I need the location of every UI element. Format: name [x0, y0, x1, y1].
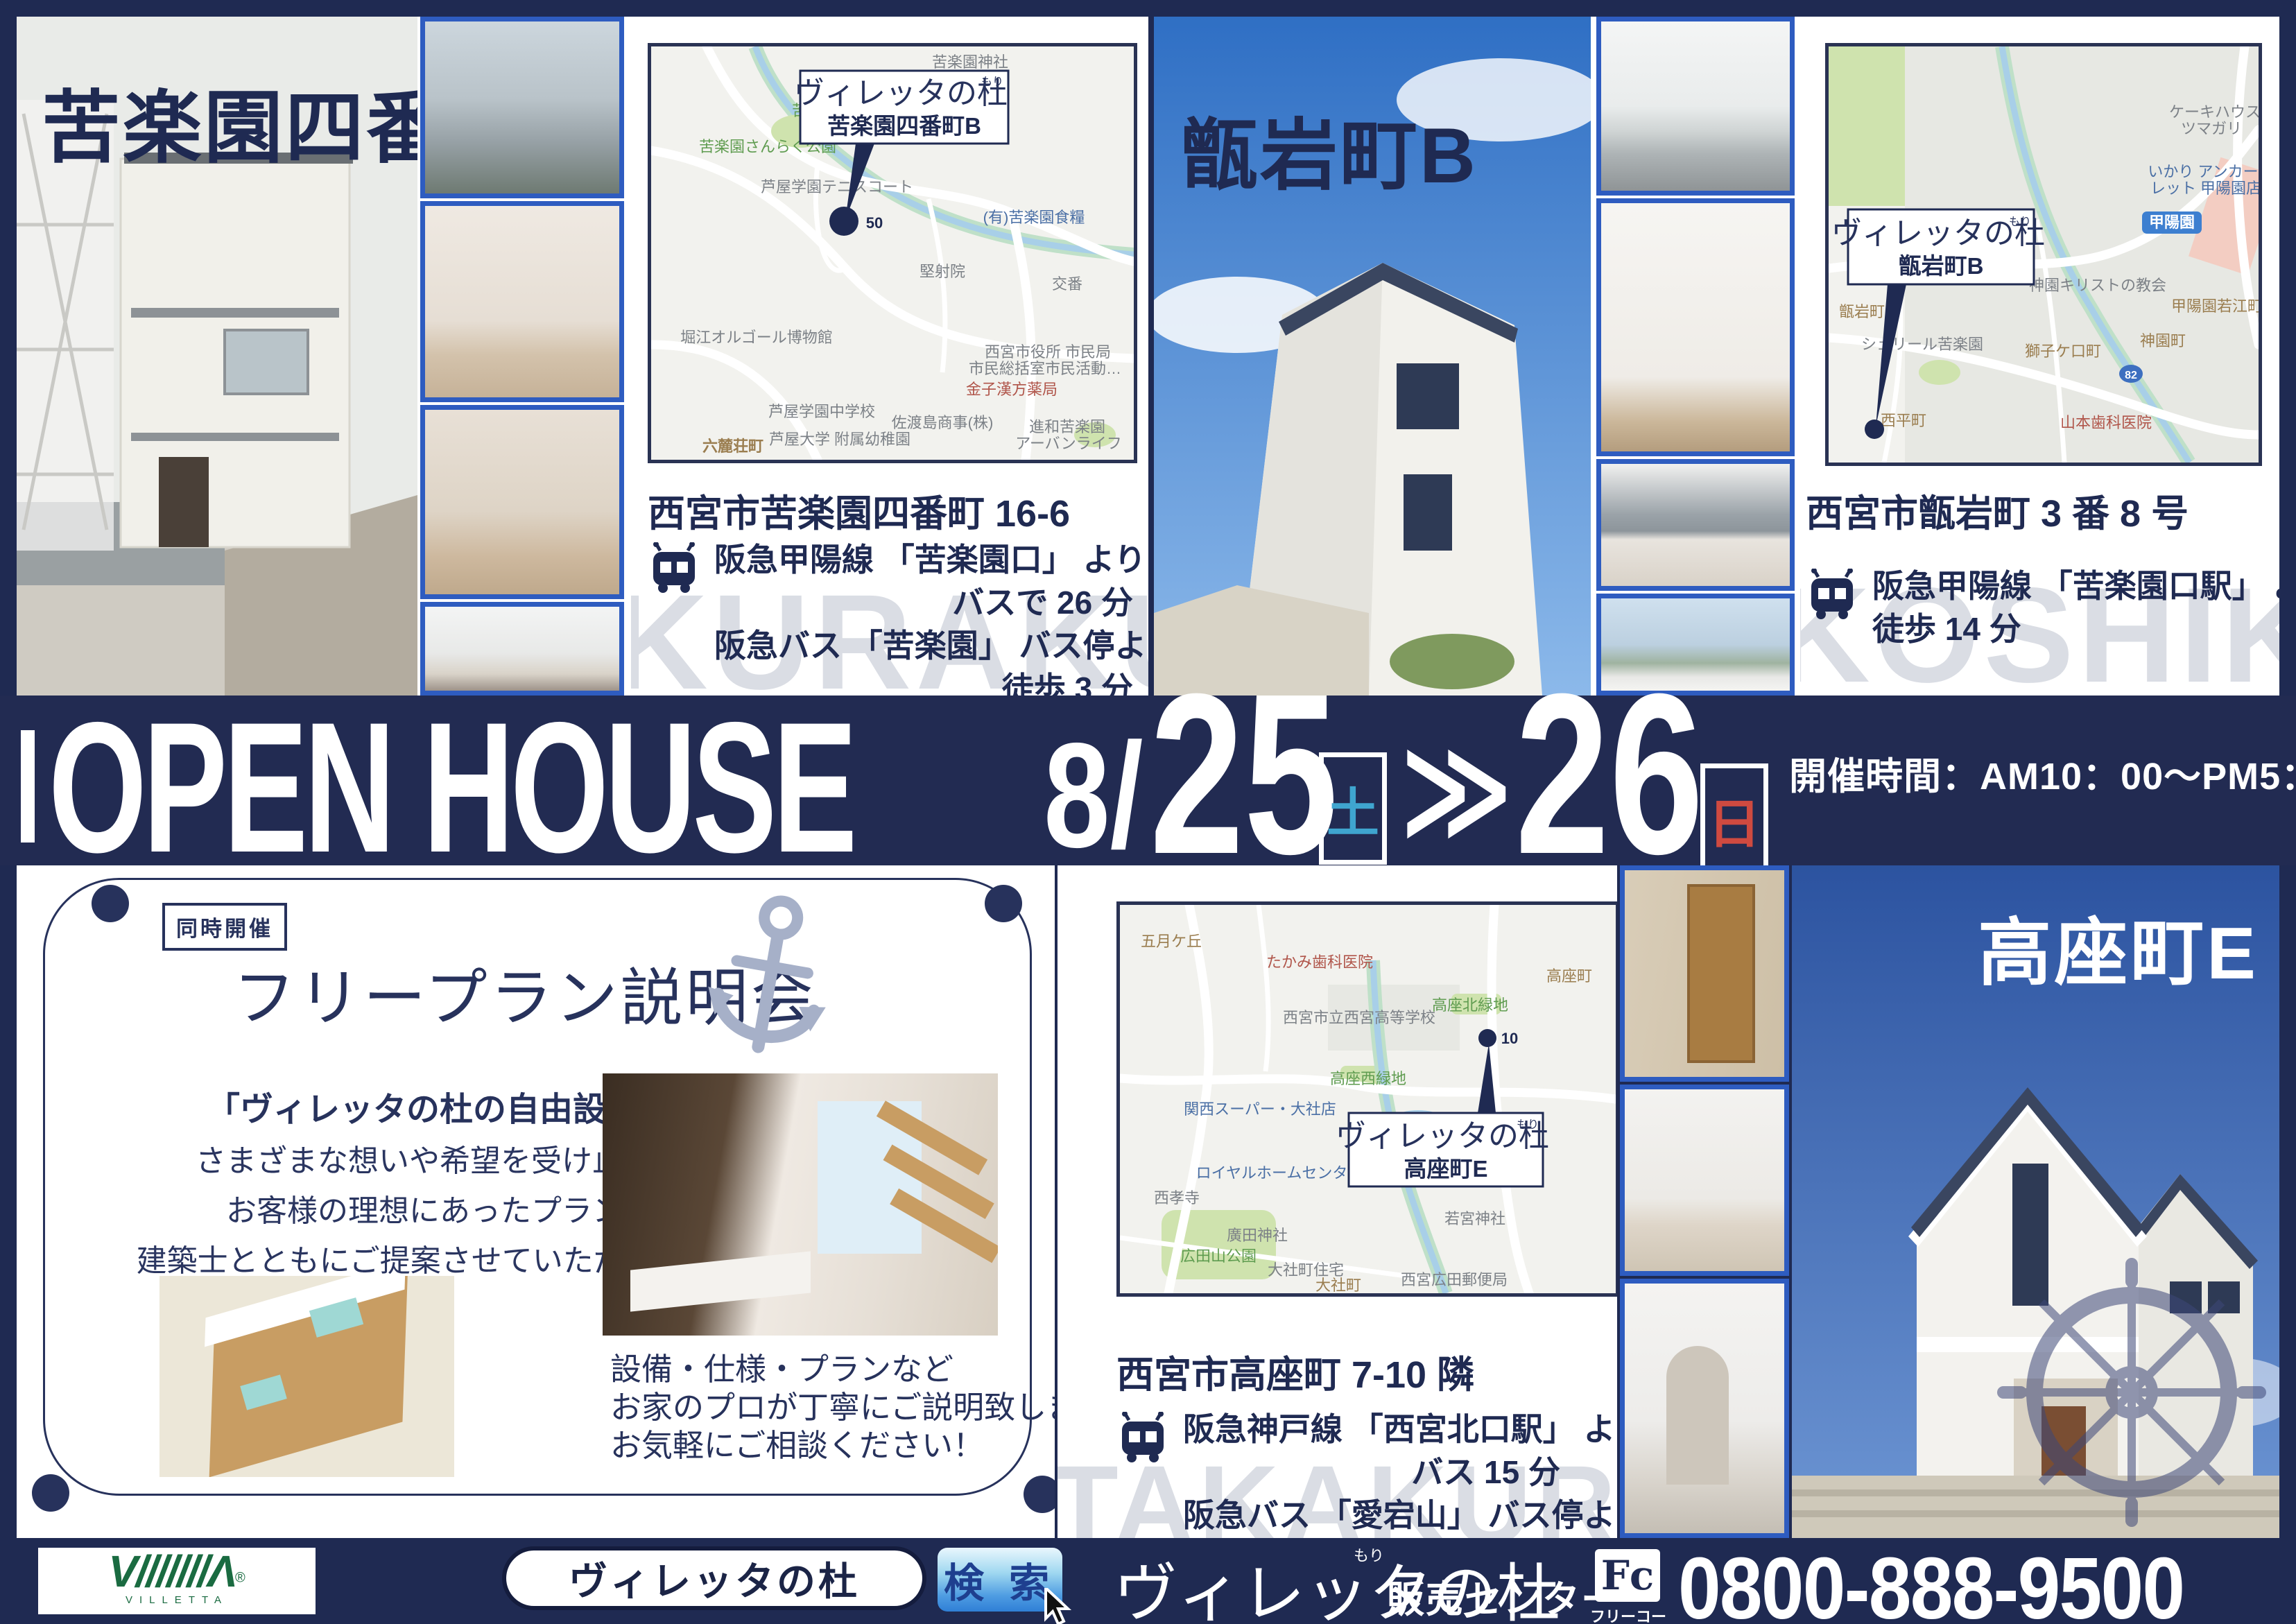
map-callout-name: 高座町E	[1404, 1156, 1487, 1182]
koshikiiwa-address: 西宮市甑岩町 3 番 8 号	[1806, 483, 2189, 537]
photo-koshikiiwa-bedroom	[1596, 459, 1795, 591]
saturday-label: 土	[1327, 770, 1379, 847]
banner-month: 8/	[1044, 709, 1143, 881]
banner-time: 開催時間：AM10：00～PM5：00	[1789, 745, 2296, 800]
access-line: 徒歩 3 分	[1116, 1537, 1560, 1538]
banner-sunday-box: 日	[1700, 763, 1768, 876]
map-label: 西平町	[1881, 412, 1926, 429]
map-label: 芦屋学園中学校	[768, 403, 875, 420]
entrance-door	[1687, 884, 1755, 1063]
map-label: 五月ケ丘	[1141, 933, 1202, 950]
photo-takakura-hallway	[1620, 1279, 1789, 1538]
map-label: 関西スーパー・大社店	[1184, 1100, 1336, 1118]
map-label: 六麓荘町	[702, 438, 763, 455]
map-label: 高座北緑地	[1432, 996, 1508, 1014]
open-house-banner: OPEN HOUSE 8/ 25 土 ≫ 26 日 開催時間：AM10：00～P…	[0, 696, 2296, 865]
search-button[interactable]: 検 索	[938, 1548, 1062, 1612]
footer-bar: V///////Λ® VILLETTA ヴィレッタの杜 検 索 ヴィレッタの杜 …	[0, 1538, 2296, 1624]
map-callout-furigana: もり	[2009, 216, 2031, 228]
map-callout-name: 甑岩町B	[1899, 253, 1984, 279]
takakura-access: 阪急神戸線 「西宮北口駅」 より バス 15 分 阪急バス 「愛宕山」 バス停よ…	[1116, 1408, 1560, 1538]
villetta-logo-mark: V///////Λ	[108, 1546, 235, 1596]
koshikiiwa-info: KOSHIKIIWA ケーキハウス ツマガリ いかり アンカー レット 甲陽園店…	[1800, 17, 2279, 696]
interior-render	[603, 1073, 998, 1336]
map-label: 廣田神社	[1227, 1227, 1288, 1244]
search-input[interactable]: ヴィレッタの杜	[506, 1550, 922, 1606]
access-line: 阪急甲陽線 「苦楽園口」 より	[714, 542, 1146, 578]
photo-takakura-exterior: 高座町E	[1792, 865, 2279, 1538]
map-label: 金子漢方薬局	[966, 381, 1058, 398]
map-label: 広田山公園	[1180, 1247, 1257, 1265]
koshikiiwa-access: 阪急甲陽線 「苦楽園口駅」 より 徒歩 14 分	[1806, 564, 2263, 650]
map-label: 進和苦楽園	[1029, 418, 1105, 435]
banner-day-25: 25	[1150, 659, 1338, 888]
sales-center-label: 販売センター	[1387, 1569, 1620, 1623]
photo-kurakuen-living-stairs	[420, 201, 624, 402]
koshikiiwa-map: ケーキハウス ツマガリ いかり アンカー レット 甲陽園店 甲陽園 神園キリスト…	[1825, 43, 2262, 466]
anchor-icon	[700, 892, 838, 1079]
photo-kurakuen-exterior: 苦楽園四番町B	[17, 17, 417, 696]
access-line: 阪急バス 「苦楽園」 バス停より	[714, 628, 1148, 664]
photo-kurakuen-living	[420, 405, 624, 599]
photo-takakura-entrance	[1620, 865, 1789, 1082]
map-label-station: 甲陽園	[2149, 214, 2195, 231]
access-line: 阪急神戸線 「西宮北口駅」 より	[1183, 1411, 1617, 1447]
map-label: 西孝寺	[1154, 1189, 1200, 1207]
map-callout-name: 苦楽園四番町B	[827, 113, 981, 139]
map-label: 山本歯科医院	[2060, 414, 2152, 431]
map-label: 交番	[1052, 275, 1082, 293]
map-callout-furigana: もり	[981, 76, 1003, 88]
photo-koshikiiwa-washbasin	[1596, 198, 1795, 456]
kurakuen-title: 苦楽園四番町B	[42, 64, 417, 178]
registered-mark: ®	[235, 1571, 245, 1586]
map-label: 佐渡島商事(株)	[892, 414, 994, 431]
map-label: いかり アンカー	[2148, 163, 2258, 180]
takakura-map: 五月ケ丘 たかみ歯科医院 西宮市立西宮高等学校 高座北緑地 高座町 高座西緑地 …	[1116, 901, 1617, 1297]
section-koshikiiwa: 甑岩町B KOSHIKIIWA ケーキハウス ツマガリ いかり ア	[1154, 17, 2279, 696]
free-call-label: フリーコール	[1587, 1605, 1670, 1624]
map-callout-furigana: もり	[1517, 1118, 1539, 1131]
map-label: 西宮市役所 市民局	[985, 343, 1111, 361]
access-line: 阪急バス 「愛宕山」 バス停より	[1183, 1497, 1617, 1533]
map-label: 大社町	[1315, 1277, 1361, 1294]
map-label: 神園キリストの教会	[2029, 277, 2166, 294]
kurakuen-access: 阪急甲陽線 「苦楽園口」 より バスで 26 分 阪急バス 「苦楽園」 バス停よ…	[648, 538, 1133, 696]
map-label: アーバンライフ	[1015, 435, 1122, 452]
banner-arrow: ≫	[1399, 715, 1514, 865]
section-takakura-info: TAKAKURACYO 五月ケ丘 たかみ歯科医院 西宮市立西宮高等学校 高座北緑…	[1058, 865, 1617, 1538]
map-label: 苦楽園神社	[932, 53, 1008, 71]
banner-saturday-box: 土	[1319, 752, 1387, 865]
flyer-root: 苦楽園四番町B KURAKUEN 苦楽園神社 苦楽園しろ 苦楽園さんらく公園	[0, 0, 2296, 1624]
kurakuen-map: 苦楽園神社 苦楽園しろ 苦楽園さんらく公園 芦屋学園テニスコート (有)苦楽園食…	[648, 43, 1137, 463]
map-marker-label: 10	[1501, 1030, 1518, 1047]
free-call-icon: Fc	[1595, 1549, 1660, 1602]
map-label: 神園町	[2140, 332, 2186, 349]
banner-title: OPEN HOUSE	[49, 680, 854, 895]
photo-takakura-closet-room	[1620, 1085, 1789, 1276]
mouse-cursor-icon	[1044, 1588, 1076, 1624]
hallway-arch-niche	[1666, 1346, 1729, 1485]
map-label: 芦屋学園テニスコート	[761, 178, 913, 196]
section-kurakuen: 苦楽園四番町B KURAKUEN 苦楽園神社 苦楽園しろ 苦楽園さんらく公園	[17, 17, 1148, 696]
map-marker-label: 50	[866, 214, 883, 232]
footer-brand-furigana: もり	[1354, 1544, 1384, 1566]
ornament-dot	[92, 885, 129, 922]
ornament-dot	[32, 1474, 69, 1512]
map-label: 市民総括室市民活動…	[969, 360, 1121, 377]
access-line: 徒歩 3 分	[648, 667, 1133, 696]
map-label: 堀江オルゴール博物館	[680, 329, 833, 346]
phone-number[interactable]: 0800-888-9500	[1678, 1538, 2184, 1624]
photo-kurakuen-cityview	[420, 17, 624, 198]
map-label: 若宮神社	[1444, 1210, 1505, 1227]
banner-day-26: 26	[1515, 659, 1704, 888]
map-label: 高座西緑地	[1330, 1070, 1406, 1087]
sunday-label: 日	[1708, 781, 1761, 858]
map-label: 高座町	[1546, 967, 1592, 985]
photo-koshikiiwa-kitchen	[1596, 17, 1795, 196]
map-label: レット 甲陽園店	[2150, 180, 2261, 197]
banner-accent-bar	[21, 730, 35, 843]
map-label: 獅子ケ口町	[2025, 343, 2101, 360]
villetta-logo-text: VILLETTA	[38, 1595, 316, 1606]
access-line: 徒歩 14 分	[1872, 611, 2021, 647]
map-callout-brand: ヴィレッタの杜	[794, 76, 1008, 111]
photo-koshikiiwa-exterior: 甑岩町B	[1154, 17, 1591, 696]
map-label: (有)苦楽園食糧	[983, 209, 1085, 226]
map-label: 甲陽園若江町	[2171, 297, 2262, 315]
map-label: 芦屋大学 附属幼稚園	[769, 431, 910, 448]
ornament-dot	[985, 885, 1022, 922]
map-label: 西宮広田郵便局	[1401, 1271, 1508, 1288]
ornament-dot	[1024, 1476, 1055, 1513]
map-label: 堅射院	[920, 263, 965, 280]
seminar-badge: 同時開催	[162, 903, 287, 951]
kurakuen-info: KURAKUEN 苦楽園神社 苦楽園しろ 苦楽園さんらく公園 芦屋学園テニスコー…	[631, 17, 1148, 696]
section-seminar: 同時開催 フリープラン説明会 「ヴィレッタの杜の自由設計」 さまざまな想いや希望…	[17, 865, 1055, 1538]
villetta-logo: V///////Λ® VILLETTA	[38, 1548, 316, 1614]
takakura-title: 高座町E	[1978, 893, 2259, 1000]
map-label: シェリール苦楽園	[1861, 336, 1983, 353]
access-line: バス 15 分	[1116, 1451, 1560, 1494]
render-table	[630, 1251, 811, 1311]
map-label: ケーキハウス	[2169, 103, 2261, 121]
map-label: ツマガリ	[2181, 120, 2242, 137]
koshikiiwa-title: 甑岩町B	[1180, 93, 1478, 205]
access-line: 阪急甲陽線 「苦楽園口駅」 より	[1872, 568, 2279, 604]
map-label: 西宮市立西宮高等学校	[1283, 1009, 1435, 1026]
access-line: バスで 26 分	[648, 581, 1133, 624]
map-label-route: 82	[2125, 370, 2137, 381]
kurakuen-address: 西宮市苦楽園四番町 16-6	[648, 483, 1070, 537]
map-label: たかみ歯科医院	[1266, 953, 1373, 971]
map-label: 甑岩町	[1839, 303, 1885, 320]
takakura-address: 西宮市高座町 7-10 隣	[1116, 1344, 1474, 1399]
seminar-note-line: お気軽にご相談ください！	[610, 1420, 984, 1465]
floorplan-render	[159, 1276, 454, 1477]
